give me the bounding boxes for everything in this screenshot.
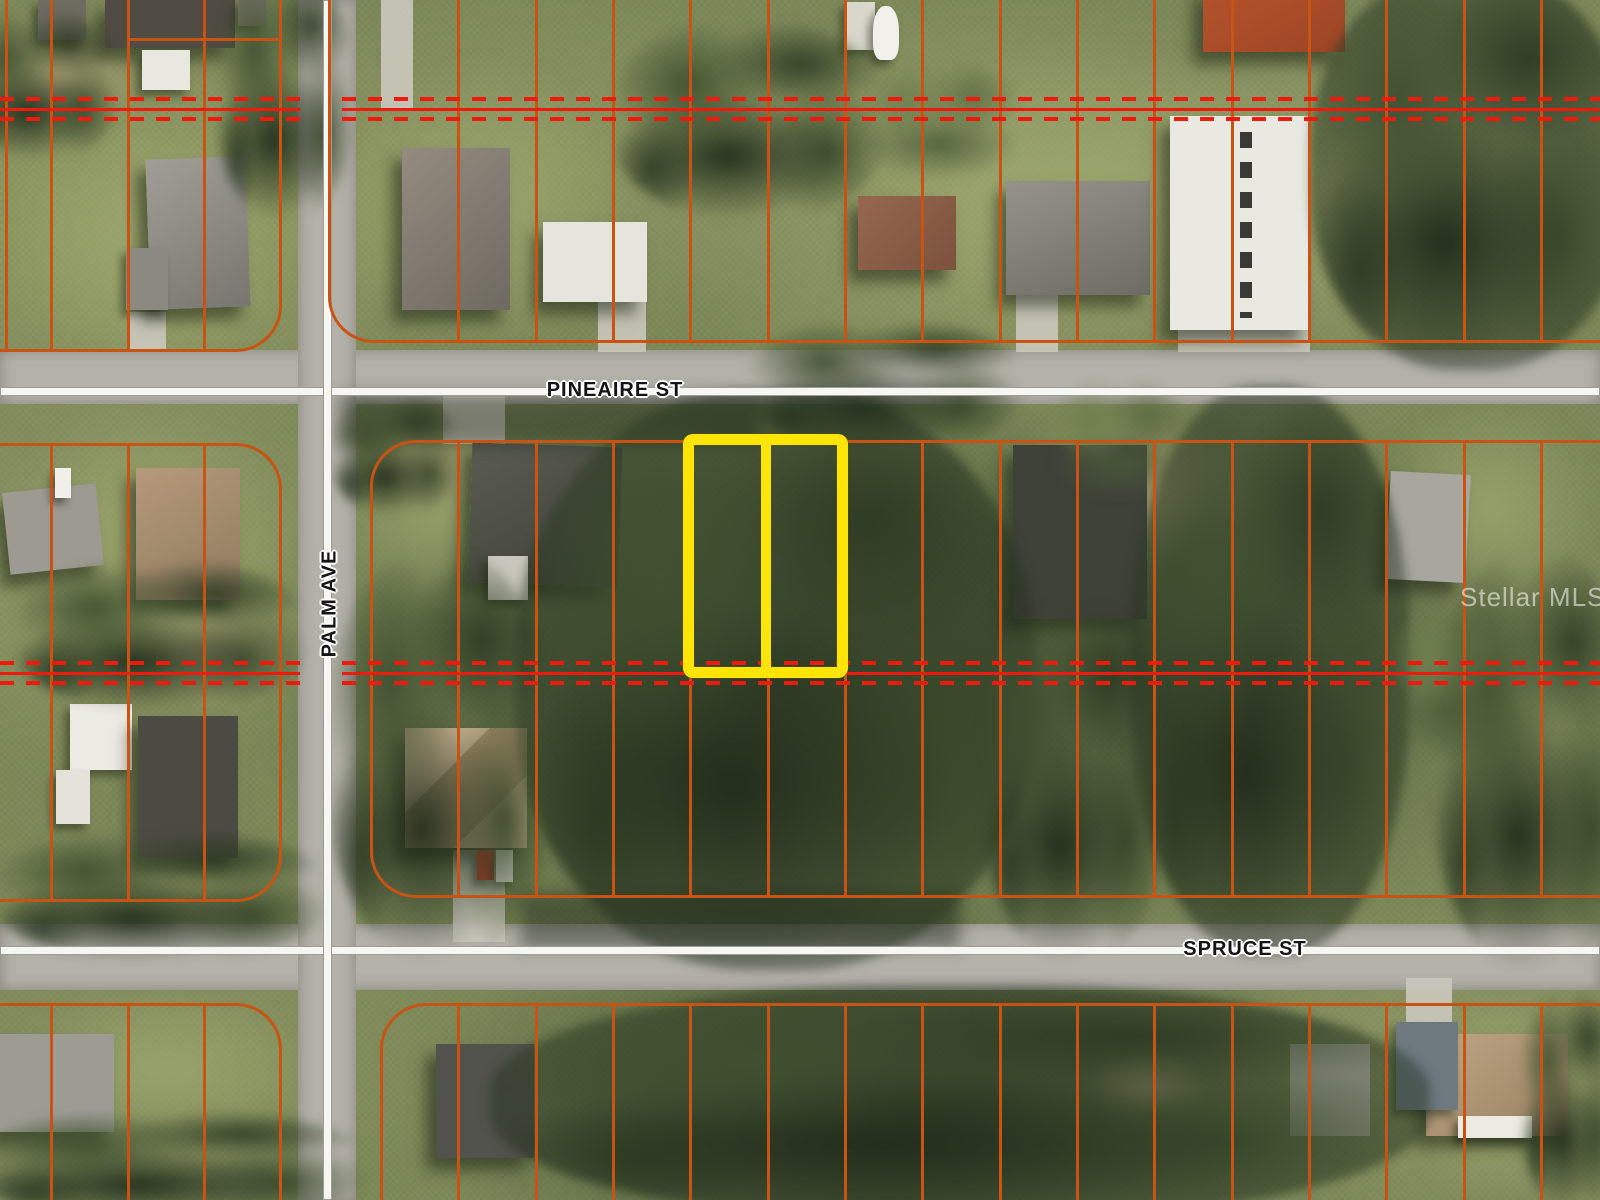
lot-line [127,0,130,352]
lot-line [1385,440,1388,898]
plat-boundary [0,108,300,111]
lot-line [921,440,924,898]
lot-line [999,440,1002,898]
road-centerline-pineaire [0,387,1600,396]
plat-boundary [0,672,300,675]
lot-line [203,1003,206,1200]
lot-line [1463,440,1466,898]
lot-line [1153,440,1156,898]
plat-boundary-dashed [0,681,300,685]
lot-line [1231,1003,1234,1200]
lot-line [612,1003,615,1200]
plat-boundary-dashed [0,97,300,101]
lot-line [1308,1003,1311,1200]
highlighted-parcel-divider [761,445,771,667]
lot-line [999,0,1002,343]
aerial-parcel-map: PINEAIRE ST PALM AVE SPRUCE ST Stellar M… [0,0,1600,1200]
lot-line [767,0,770,343]
plat-boundary-dashed [342,661,1600,665]
lot-line [1153,0,1156,343]
plat-boundary [342,672,1600,675]
parcel-block [328,0,1600,343]
street-label-spruce: SPRUCE ST [1135,938,1355,961]
lot-line [1231,0,1234,343]
lot-line [1076,1003,1079,1200]
lot-line [535,1003,538,1200]
lot-line [999,1003,1002,1200]
lot-line [127,38,282,41]
lot-line [457,1003,460,1200]
lot-line [1231,440,1234,898]
lot-line [5,0,8,352]
lot-line [1385,0,1388,343]
plat-boundary-dashed [342,117,1600,121]
plat-boundary [342,108,1600,111]
lot-line [921,0,924,343]
lot-line [535,440,538,898]
lot-line [1540,0,1543,343]
lot-line [50,0,53,352]
plat-boundary-dashed [0,661,300,665]
lot-line [844,0,847,343]
parcel-block [0,1003,282,1200]
lot-line [689,0,692,343]
street-label-palm: PALM AVE [319,509,342,699]
lot-line [203,0,206,352]
lot-line [457,440,460,898]
lot-line [921,1003,924,1200]
plat-boundary-dashed [342,97,1600,101]
lot-line [457,0,460,343]
lot-line [50,1003,53,1200]
lot-line [1153,1003,1156,1200]
lot-line [535,0,538,343]
lot-line [689,1003,692,1200]
lot-line [1076,0,1079,343]
lot-line [1540,440,1543,898]
lot-line [1463,1003,1466,1200]
lot-line [1463,0,1466,343]
lot-line [127,1003,130,1200]
parcel-block [0,0,282,352]
parcel-block [380,1003,1600,1200]
lot-line [612,440,615,898]
street-label-pineaire: PINEAIRE ST [505,379,725,402]
lot-line [1308,0,1311,343]
lot-line [767,1003,770,1200]
lot-line [1540,1003,1543,1200]
watermark: Stellar MLS [1460,582,1600,613]
lot-line [612,0,615,343]
lot-line [1385,1003,1388,1200]
parcel-block [370,440,1600,898]
lot-line [844,1003,847,1200]
plat-boundary-dashed [342,681,1600,685]
road-centerline-spruce [0,946,1600,955]
plat-boundary-dashed [0,117,300,121]
lot-line [1308,440,1311,898]
highlighted-parcel-outline [683,434,848,678]
lot-line [1076,440,1079,898]
